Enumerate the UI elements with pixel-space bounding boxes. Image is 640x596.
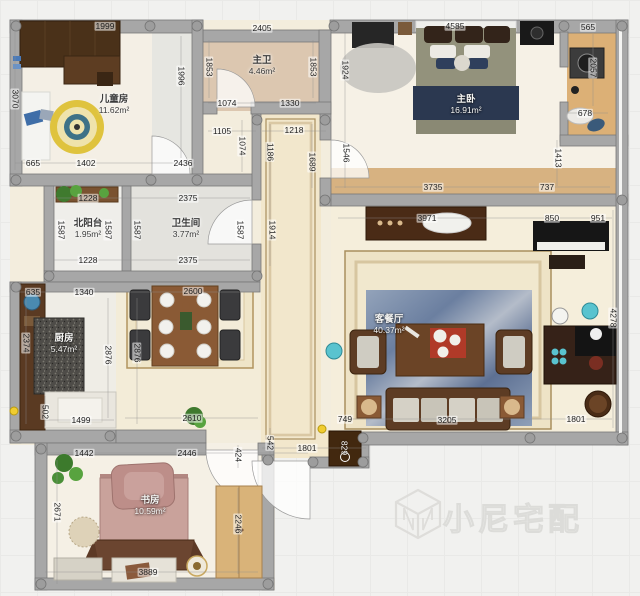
kitchen-granite-counter [34,318,84,394]
dining-chair [220,290,240,320]
watermark-brand-text: 小尼宅配 [443,494,583,539]
utility-sink [567,108,593,124]
balcony-furniture [56,185,118,202]
master-bed [413,21,519,134]
kids-desk [22,92,50,160]
dining-chair [220,330,240,360]
watermark-cube-icon [396,490,440,538]
floor-plan-canvas: 儿童房11.62m²主卫4.46m²主卧16.91m²北阳台1.95m²卫生间3… [0,0,640,596]
plant [55,454,73,472]
study-rug [69,517,99,547]
sofa [386,388,510,430]
cyan-stool [326,343,342,359]
dining-chair [130,330,150,360]
study-bench [54,558,102,580]
dining-chair [130,290,150,320]
tv-cabinet [544,326,616,384]
cyan-stool [582,303,598,319]
kitchen-sink [24,294,40,310]
nightstand [398,22,412,35]
round-table-small [552,308,568,324]
table-plant [180,312,192,330]
kids-round-rug [50,100,104,154]
piano-bench [549,255,585,269]
entry-cabinet [329,431,361,466]
bedroom-rug [340,43,416,93]
plant [56,186,72,202]
bedroom-wood-strip [331,168,616,195]
study-wardrobe [216,486,262,578]
